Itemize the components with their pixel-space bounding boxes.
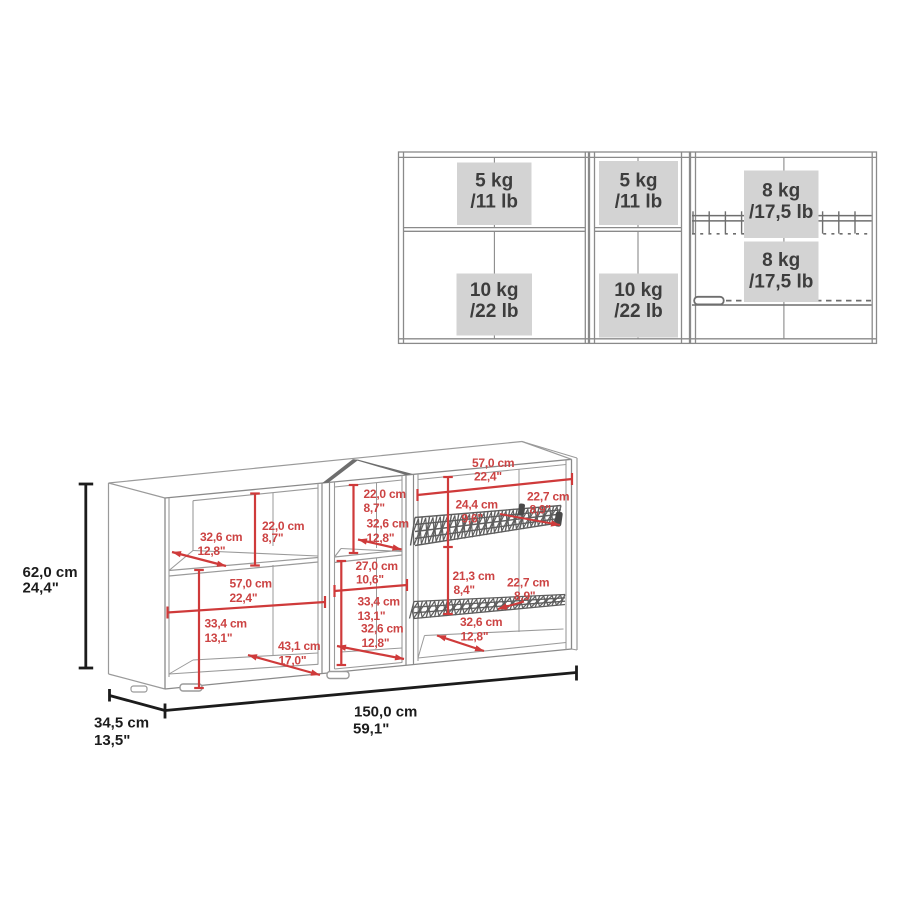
svg-text:5 kg: 5 kg <box>619 171 657 192</box>
svg-text:33,4 cm: 33,4 cm <box>358 595 400 609</box>
svg-text:32,6 cm: 32,6 cm <box>200 530 242 544</box>
svg-text:5 kg: 5 kg <box>475 171 513 192</box>
svg-text:32,6 cm: 32,6 cm <box>460 615 502 629</box>
svg-text:22,0 cm: 22,0 cm <box>364 487 406 501</box>
svg-text:33,4 cm: 33,4 cm <box>205 617 247 631</box>
svg-text:8,9": 8,9" <box>530 503 551 517</box>
svg-text:150,0 cm: 150,0 cm <box>354 704 417 721</box>
svg-text:8,7": 8,7" <box>364 501 385 515</box>
svg-text:8,7": 8,7" <box>262 531 283 545</box>
svg-text:8,4": 8,4" <box>454 583 475 597</box>
svg-text:22,7 cm: 22,7 cm <box>507 576 549 590</box>
svg-text:57,0 cm: 57,0 cm <box>472 456 514 470</box>
svg-text:10 kg: 10 kg <box>614 280 663 301</box>
svg-text:12,8": 12,8" <box>461 630 489 644</box>
svg-text:/17,5 lb: /17,5 lb <box>749 272 813 293</box>
svg-text:32,6 cm: 32,6 cm <box>367 517 409 531</box>
svg-text:/22 lb: /22 lb <box>470 301 519 322</box>
svg-text:13,5": 13,5" <box>94 732 130 749</box>
svg-text:10 kg: 10 kg <box>470 280 519 301</box>
svg-text:24,4": 24,4" <box>23 580 59 597</box>
svg-text:12,8": 12,8" <box>362 636 390 650</box>
svg-text:/17,5 lb: /17,5 lb <box>749 202 813 223</box>
svg-text:27,0 cm: 27,0 cm <box>356 559 398 573</box>
svg-text:/11 lb: /11 lb <box>470 192 518 213</box>
svg-text:34,5 cm: 34,5 cm <box>94 715 149 732</box>
svg-text:13,1": 13,1" <box>205 631 233 645</box>
svg-text:24,4 cm: 24,4 cm <box>456 498 498 512</box>
svg-text:12,8": 12,8" <box>198 544 226 558</box>
svg-text:22,7 cm: 22,7 cm <box>527 490 569 504</box>
svg-text:22,4": 22,4" <box>474 470 502 484</box>
svg-text:21,3 cm: 21,3 cm <box>453 569 495 583</box>
svg-text:10,6": 10,6" <box>356 573 384 587</box>
svg-text:59,1": 59,1" <box>353 721 389 738</box>
svg-text:32,6 cm: 32,6 cm <box>361 622 403 636</box>
svg-text:/22 lb: /22 lb <box>614 301 663 322</box>
svg-text:57,0 cm: 57,0 cm <box>230 577 272 591</box>
svg-text:9,6": 9,6" <box>462 512 483 526</box>
svg-text:62,0 cm: 62,0 cm <box>23 564 78 581</box>
svg-text:8 kg: 8 kg <box>762 181 800 202</box>
svg-text:8,9": 8,9" <box>514 589 535 603</box>
svg-text:22,4": 22,4" <box>230 591 258 605</box>
svg-text:/11 lb: /11 lb <box>615 192 663 213</box>
svg-text:12,8": 12,8" <box>367 531 395 545</box>
svg-text:17,0": 17,0" <box>279 654 307 668</box>
svg-text:43,1 cm: 43,1 cm <box>278 639 320 653</box>
svg-text:8 kg: 8 kg <box>762 250 800 271</box>
